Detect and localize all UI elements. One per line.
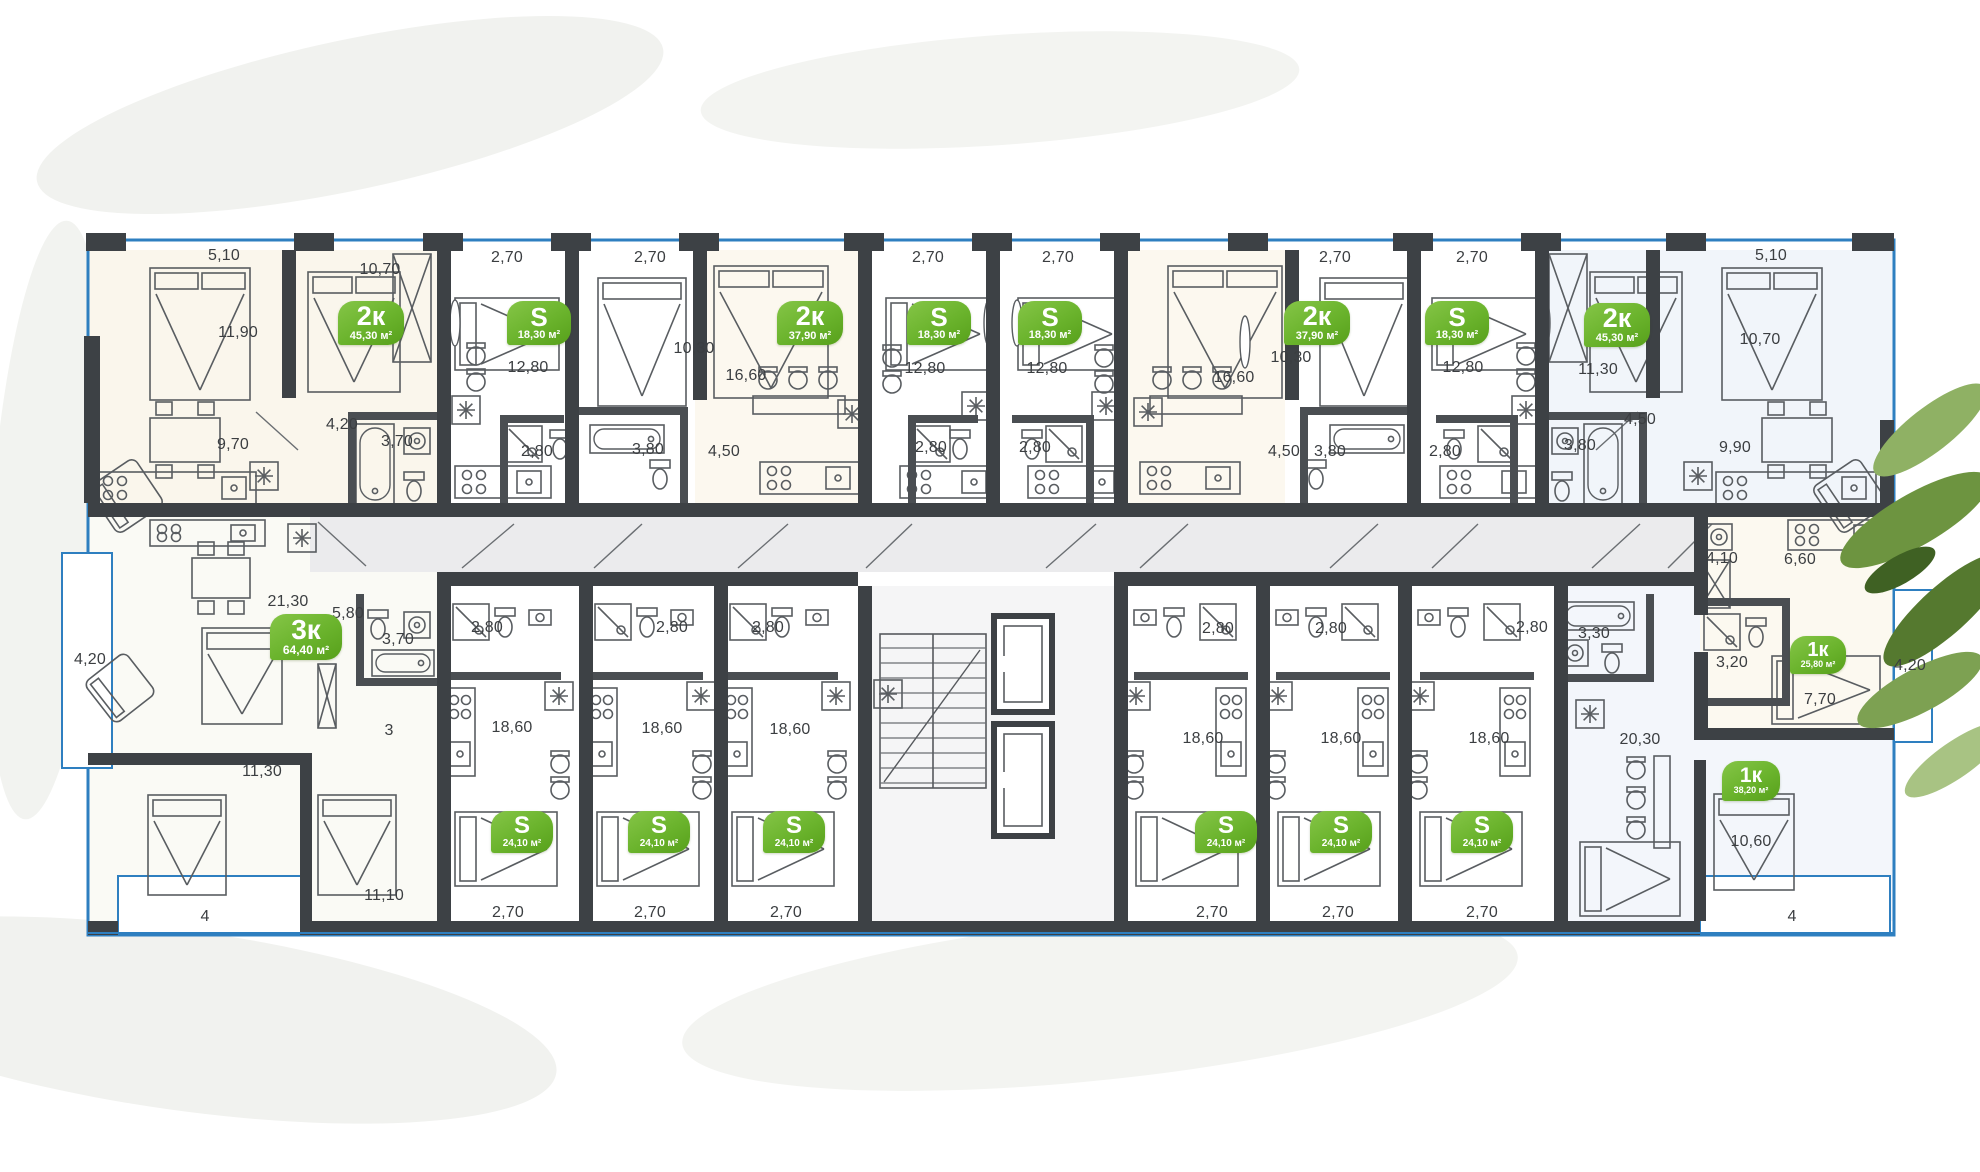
partition-wall [1420, 672, 1534, 680]
wall-segment [679, 233, 719, 251]
apartment-area-label: 25,80 м² [1801, 660, 1836, 670]
wall-segment [282, 250, 296, 398]
partition-wall [1700, 698, 1790, 706]
partition-wall [578, 407, 688, 415]
wall-segment [1694, 652, 1708, 740]
wall-segment [565, 250, 579, 503]
balcony-door-icon [450, 300, 460, 346]
apartment-area-label: 37,90 м² [789, 330, 831, 342]
apartment-type-label: S [930, 305, 947, 330]
apartment-area-label: 18,30 м² [518, 329, 560, 341]
partition-wall [908, 415, 916, 510]
apartment-badge[interactable]: S 24,10 м² [628, 811, 690, 853]
apartment-type-label: 2к [1603, 306, 1632, 332]
wall-segment [1535, 250, 1549, 503]
wall-segment [294, 233, 334, 251]
partition-wall [1560, 674, 1654, 682]
apartment-area-label: 45,30 м² [350, 330, 392, 342]
apartment-badge[interactable]: 1к 25,80 м² [1790, 636, 1846, 674]
wall-segment [437, 250, 451, 503]
partition-wall [1639, 412, 1647, 512]
apartment-type-label: S [514, 815, 530, 838]
wall-segment [1256, 586, 1270, 921]
partition-wall [1510, 415, 1518, 510]
partition-wall [1646, 594, 1654, 682]
wall-segment [1114, 250, 1128, 503]
floor-plan-canvas: 5,1010,702,702,702,702,702,702,705,1010,… [0, 0, 1980, 1172]
apartment-type-label: 1к [1807, 641, 1828, 660]
apartment-badge[interactable]: 2к 45,30 м² [338, 301, 404, 345]
apartment-type-label: S [786, 815, 802, 838]
partition-wall [1700, 598, 1788, 606]
apartment-type-label: S [1333, 815, 1349, 838]
apartment-type-label: S [651, 815, 667, 838]
floor-plan-drawing [0, 0, 1980, 1172]
room-area [88, 250, 437, 503]
apartment-area-label: 18,30 м² [1029, 329, 1071, 341]
apartment-badge[interactable]: S 18,30 м² [507, 301, 571, 345]
partition-wall [589, 672, 703, 680]
apartment-area-label: 37,90 м² [1296, 330, 1338, 342]
apartment-area-label: 24,10 м² [640, 838, 679, 849]
apartment-type-label: S [1448, 305, 1465, 330]
balcony-outline [1700, 876, 1890, 933]
apartment-badge[interactable]: S 24,10 м² [1310, 811, 1372, 853]
partition-wall [348, 412, 356, 512]
balcony-door-icon [1240, 316, 1250, 368]
room-area [1128, 250, 1285, 503]
partition-wall [908, 415, 978, 423]
apartment-badge[interactable]: S 24,10 м² [1451, 811, 1513, 853]
apartment-badge[interactable]: 3к 64,40 м² [270, 614, 342, 660]
apartment-type-label: S [1218, 815, 1234, 838]
apartment-type-label: S [1474, 815, 1490, 838]
apartment-type-label: S [530, 305, 547, 330]
apartment-area-label: 18,30 м² [1436, 329, 1478, 341]
partition-wall [348, 412, 446, 420]
wall-segment [88, 503, 1894, 517]
balcony-outline [118, 876, 304, 933]
wall-segment [423, 233, 463, 251]
palm-leaf-watermark [21, 0, 678, 255]
apartment-area-label: 18,30 м² [918, 329, 960, 341]
apartment-badge[interactable]: 1к 38,20 м² [1722, 761, 1780, 801]
wall-segment [1114, 586, 1128, 921]
partition-wall [1276, 672, 1390, 680]
apartment-badge[interactable]: S 18,30 м² [907, 301, 971, 345]
room-area [88, 517, 437, 921]
room-area [310, 517, 1694, 572]
apartment-type-label: 3к [291, 617, 321, 644]
partition-wall [500, 415, 564, 423]
apartment-type-label: S [1041, 305, 1058, 330]
wall-segment [693, 250, 707, 400]
apartment-area-label: 64,40 м² [283, 644, 329, 657]
partition-wall [724, 672, 838, 680]
wall-segment [1554, 586, 1568, 921]
partition-wall [1086, 415, 1094, 510]
apartment-type-label: 2к [1303, 304, 1332, 330]
apartment-badge[interactable]: 2к 37,90 м² [1284, 301, 1350, 345]
apartment-area-label: 24,10 м² [1463, 838, 1502, 849]
wall-segment [437, 572, 858, 586]
apartment-type-label: 2к [796, 304, 825, 330]
apartment-badge[interactable]: 2к 45,30 м² [1584, 303, 1650, 347]
wall-segment [86, 233, 126, 251]
apartment-type-label: 1к [1740, 766, 1762, 786]
wall-segment [1700, 728, 1894, 740]
balcony-outline [62, 553, 112, 768]
partition-wall [1549, 412, 1647, 420]
partition-wall [356, 678, 440, 686]
wall-segment [1666, 233, 1706, 251]
wall-segment [437, 586, 451, 921]
wall-segment [1694, 503, 1708, 615]
wall-segment [1393, 233, 1433, 251]
wall-segment [1554, 572, 1700, 586]
wall-segment [84, 336, 100, 503]
partition-wall [500, 415, 508, 510]
partition-wall [356, 594, 364, 686]
wall-segment [1398, 586, 1412, 921]
wall-segment [1694, 760, 1706, 921]
partition-wall [1300, 407, 1410, 415]
partition-wall [680, 407, 688, 511]
wall-segment [1521, 233, 1561, 251]
partition-wall [447, 672, 561, 680]
wall-segment [1407, 250, 1421, 503]
partition-wall [1782, 598, 1790, 706]
elevator-icon [994, 724, 1052, 836]
wall-segment [1114, 572, 1554, 586]
partition-wall [1436, 415, 1518, 423]
wall-segment [1228, 233, 1268, 251]
wall-segment [300, 765, 312, 921]
apartment-area-label: 24,10 м² [775, 838, 814, 849]
apartment-area-label: 45,30 м² [1596, 332, 1638, 344]
partition-wall [1134, 672, 1248, 680]
apartment-area-label: 24,10 м² [1207, 838, 1246, 849]
apartment-area-label: 24,10 м² [503, 838, 542, 849]
wall-segment [579, 586, 593, 921]
apartment-badge[interactable]: S 24,10 м² [1195, 811, 1257, 853]
wall-segment [844, 233, 884, 251]
palm-leaf-watermark [697, 14, 1303, 166]
wall-segment [551, 233, 591, 251]
apartment-type-label: 2к [357, 304, 386, 330]
apartment-badge[interactable]: 2к 37,90 м² [777, 301, 843, 345]
partition-wall [1012, 415, 1094, 423]
wall-segment [1100, 233, 1140, 251]
wall-segment [858, 250, 872, 503]
apartment-badge[interactable]: S 24,10 м² [491, 811, 553, 853]
elevator-icon [994, 616, 1052, 712]
apartment-badge[interactable]: S 18,30 м² [1018, 301, 1082, 345]
wall-segment [972, 233, 1012, 251]
wall-segment [858, 586, 872, 921]
apartment-area-label: 24,10 м² [1322, 838, 1361, 849]
wall-segment [88, 753, 312, 765]
wall-segment [1852, 233, 1894, 251]
partition-wall [1300, 407, 1308, 511]
apartment-badge[interactable]: S 18,30 м² [1425, 301, 1489, 345]
apartment-area-label: 38,20 м² [1734, 786, 1769, 796]
wall-segment [986, 250, 1000, 503]
apartment-badge[interactable]: S 24,10 м² [763, 811, 825, 853]
wall-segment [714, 586, 728, 921]
